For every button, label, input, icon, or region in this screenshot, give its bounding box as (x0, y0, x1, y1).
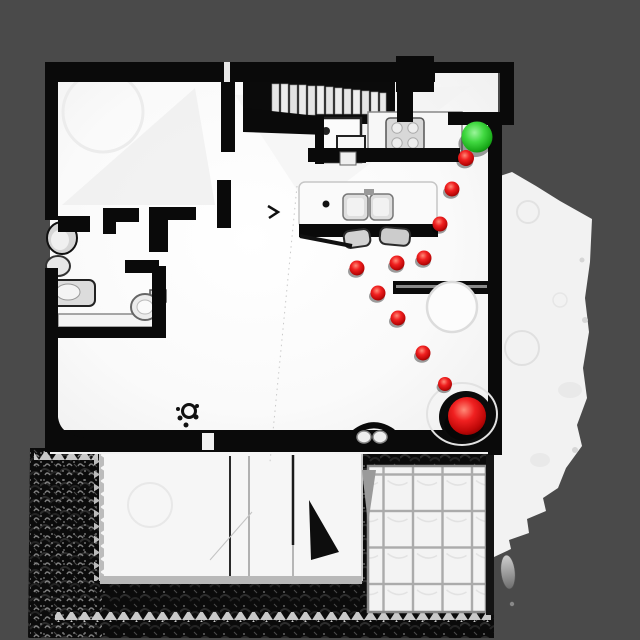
island-fixture-dot (323, 201, 330, 208)
waypoint-marker[interactable] (391, 311, 406, 326)
waypoint-marker[interactable] (390, 256, 405, 271)
waypoint-marker[interactable] (458, 150, 474, 166)
terrain-debris (510, 602, 514, 606)
round-table-outline (427, 282, 477, 332)
counter-base-shadow (308, 148, 460, 162)
counter-handle (340, 152, 356, 165)
stove-burner (408, 123, 418, 133)
waypoint-marker[interactable] (433, 217, 448, 232)
roof-speckle-texture (30, 450, 102, 638)
top-down-scan-canvas[interactable] (0, 0, 640, 640)
terrain-debris (580, 258, 585, 263)
toilet-seat (137, 300, 153, 314)
closet-blob-highlight (51, 230, 69, 250)
lower-roof-section (28, 448, 494, 638)
waypoint-marker[interactable] (350, 261, 365, 276)
stove-burner (408, 138, 418, 148)
stove-top (386, 118, 424, 151)
wall-kitchen-edge (315, 116, 324, 164)
waypoint-marker[interactable] (417, 251, 432, 266)
wall-segment (103, 208, 116, 234)
wall-top-left (45, 62, 224, 82)
terrain-bump (558, 382, 582, 398)
wall-segment (58, 216, 90, 232)
stove-burner (392, 123, 402, 133)
roof-ridge-row (55, 612, 491, 622)
stove-burner (392, 138, 402, 148)
patio-right-band (486, 455, 494, 615)
wall-bath-top (125, 260, 159, 273)
wall-top-gap (224, 62, 230, 82)
sink-inner (347, 198, 364, 216)
lower-room-edge (100, 576, 362, 584)
patio-tile-grid (362, 455, 494, 615)
waypoint-marker[interactable] (438, 377, 452, 391)
goal-sphere[interactable] (462, 122, 493, 153)
wall-right-upper (500, 70, 514, 125)
sink-inner (373, 198, 389, 216)
waypoint-marker[interactable] (416, 346, 431, 361)
wall-bath-bottom (58, 327, 166, 338)
terrain-bump (530, 453, 550, 467)
scan-viewer-viewport[interactable] (0, 0, 640, 640)
lower-level-room (94, 453, 362, 584)
wall-stair-right (397, 60, 413, 122)
bar-stool (379, 227, 410, 247)
wall-left-upper (45, 62, 58, 220)
wall-mid-vertical-2 (217, 180, 231, 228)
wall-bottom-door-gap (202, 433, 214, 450)
bath-sink-bowl (56, 284, 80, 300)
lower-room-left-teeth (94, 453, 104, 581)
sink-faucet (364, 189, 374, 195)
waypoint-marker[interactable] (371, 286, 386, 301)
terrain-debris (572, 447, 578, 453)
waypoint-marker[interactable] (445, 182, 460, 197)
terrain-debris (582, 317, 588, 323)
wall-bath-vertical (152, 266, 166, 332)
start-sphere[interactable] (448, 397, 486, 435)
patio-tiles (368, 466, 486, 612)
